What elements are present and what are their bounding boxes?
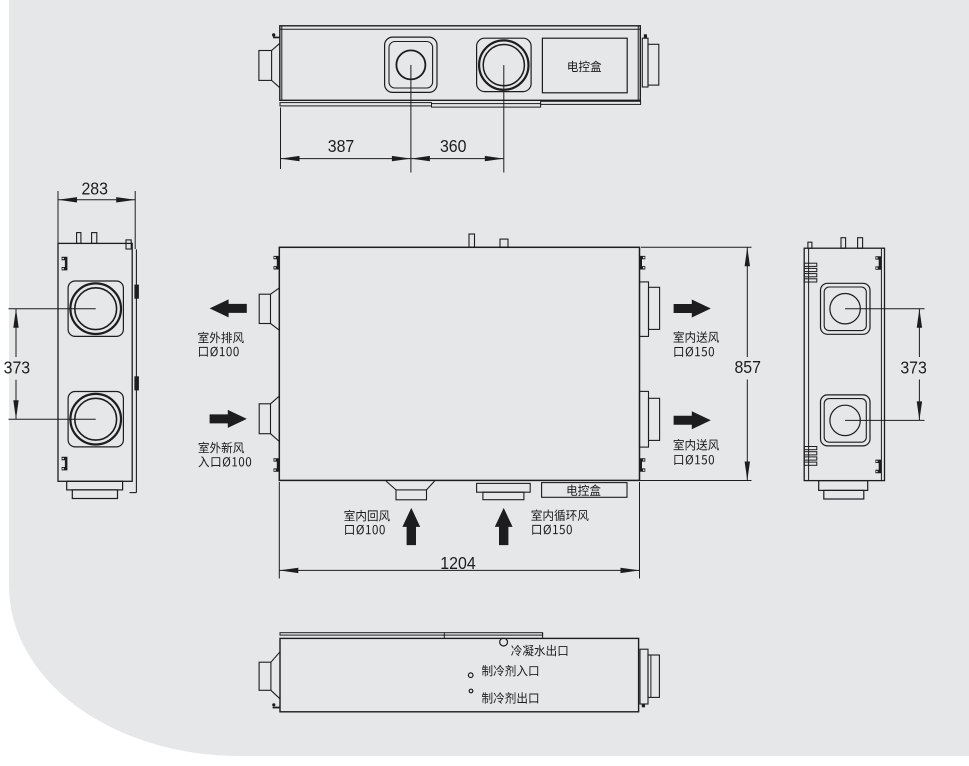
svg-text:373: 373	[900, 358, 927, 378]
svg-text:857: 857	[734, 357, 761, 377]
svg-text:360: 360	[440, 136, 467, 156]
svg-text:283: 283	[81, 178, 108, 198]
svg-text:1204: 1204	[440, 553, 476, 573]
svg-text:387: 387	[328, 136, 355, 156]
svg-text:373: 373	[4, 358, 31, 378]
